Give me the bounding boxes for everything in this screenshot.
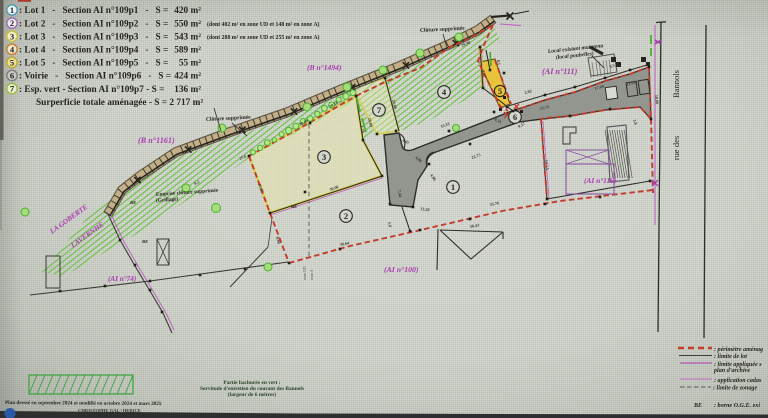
svg-text:1: 1 [10,5,14,15]
svg-text:(AI n°116): (AI n°116) [584,176,616,185]
svg-text:8.1: 8.1 [496,59,502,65]
svg-text:BE: BE [693,403,702,409]
svg-text:4.07: 4.07 [402,138,411,146]
svg-text:(largeur de 6 mètres): (largeur de 6 mètres) [228,391,276,398]
svg-text:(B n°1494): (B n°1494) [307,63,342,72]
svg-text:2: 2 [344,211,348,221]
svg-text:35.76: 35.76 [489,200,499,207]
svg-text:13.28: 13.28 [420,206,430,212]
svg-text:4: 4 [442,87,447,97]
svg-text:589 m²: 589 m² [174,46,201,56]
svg-text:4.33: 4.33 [481,69,487,77]
svg-text:: Lot 5 - Section AI n°109p5: : Lot 5 - Section AI n°109p5 - S = [19,58,168,69]
svg-text:Bannols: Bannols [671,70,681,98]
svg-text:(dont 288 m² en zone UD et 255: (dont 288 m² en zone UD et 255 m² en zon… [207,34,320,41]
svg-text:BE: BE [141,239,148,244]
svg-text:8.5: 8.5 [609,63,616,69]
svg-text:Plan dressé en septembre 2024: Plan dressé en septembre 2024 et modifié… [5,400,162,407]
svg-text:(dont 402 m² en zone UD et 148: (dont 402 m² en zone UD et 148 m² en zon… [207,21,320,28]
svg-text:55 m²: 55 m² [179,59,201,69]
svg-text:424 m²: 424 m² [174,72,201,82]
svg-text:: application cadas: : application cadas [714,378,762,384]
svg-text:10.00: 10.00 [654,95,660,105]
svg-text:(AI n°100): (AI n°100) [384,265,419,274]
svg-text:LA GOBERTE: LA GOBERTE [48,203,90,236]
svg-text:5.8: 5.8 [387,221,393,227]
svg-text:136 m²: 136 m² [174,85,201,95]
svg-text:: Voirie - Section AI n°109p: : Voirie - Section AI n°109p6 - S = [19,71,171,82]
svg-text:550 m²: 550 m² [174,19,201,29]
svg-text:: Lot 3 - Section AI n°109p3: : Lot 3 - Section AI n°109p3 - S = [19,31,168,42]
svg-text:zone A: zone A [310,269,314,280]
svg-text:zone UD: zone UD [303,266,307,280]
svg-text:20.89: 20.89 [367,117,374,127]
svg-text:543 m²: 543 m² [174,32,201,42]
svg-text:4: 4 [10,44,15,54]
svg-text:: Lot 4 - Section AI n°109p4: : Lot 4 - Section AI n°109p4 - S = [19,45,168,56]
svg-text:5: 5 [10,58,14,68]
svg-text:BE: BE [290,204,297,209]
svg-text:2: 2 [10,18,14,28]
svg-text:: Lot 1 - Section AI n°109p1: : Lot 1 - Section AI n°109p1 - S = [19,5,168,16]
svg-text:(AI n°111): (AI n°111) [542,67,578,76]
svg-text:33.33: 33.33 [440,121,451,129]
svg-text:7: 7 [10,84,15,94]
svg-text:22.75: 22.75 [471,152,482,160]
svg-text:6: 6 [10,71,15,81]
svg-text:420 m²: 420 m² [174,6,201,16]
svg-text:6: 6 [513,112,518,122]
svg-text:: périmètre aménag: : périmètre aménag [714,347,763,353]
svg-text:(B n°1161): (B n°1161) [138,136,175,145]
svg-text:7: 7 [377,105,382,115]
svg-text:: Esp. vert - Section AI n°109: : Esp. vert - Section AI n°109p7 - S = [19,84,164,95]
svg-text:rue des: rue des [671,136,681,160]
svg-text:(AI n°74): (AI n°74) [108,275,136,283]
svg-text:: limite de lot: : limite de lot [714,354,747,360]
svg-text:2.62: 2.62 [524,88,532,95]
svg-text:5: 5 [498,87,502,96]
svg-text:Surperficie totale aménagée -: Surperficie totale aménagée - S = 2 717 … [36,98,203,108]
svg-text:: Lot 2 - Section AI n°109p2: : Lot 2 - Section AI n°109p2 - S = [19,18,168,29]
svg-text:BE: BE [129,200,136,205]
svg-text:1: 1 [451,182,455,192]
svg-text:8.06: 8.06 [275,236,282,244]
svg-text:4.86: 4.86 [429,173,437,182]
svg-text:: limite de zonage: : limite de zonage [713,386,757,392]
svg-text:3: 3 [10,31,14,41]
svg-text:3.8: 3.8 [632,119,638,126]
svg-text:: borne O.G.E. exi: : borne O.G.E. exi [714,403,760,409]
svg-text:3: 3 [322,152,326,162]
svg-text:38.43: 38.43 [469,222,479,229]
svg-text:plan d'archive: plan d'archive [713,368,750,374]
